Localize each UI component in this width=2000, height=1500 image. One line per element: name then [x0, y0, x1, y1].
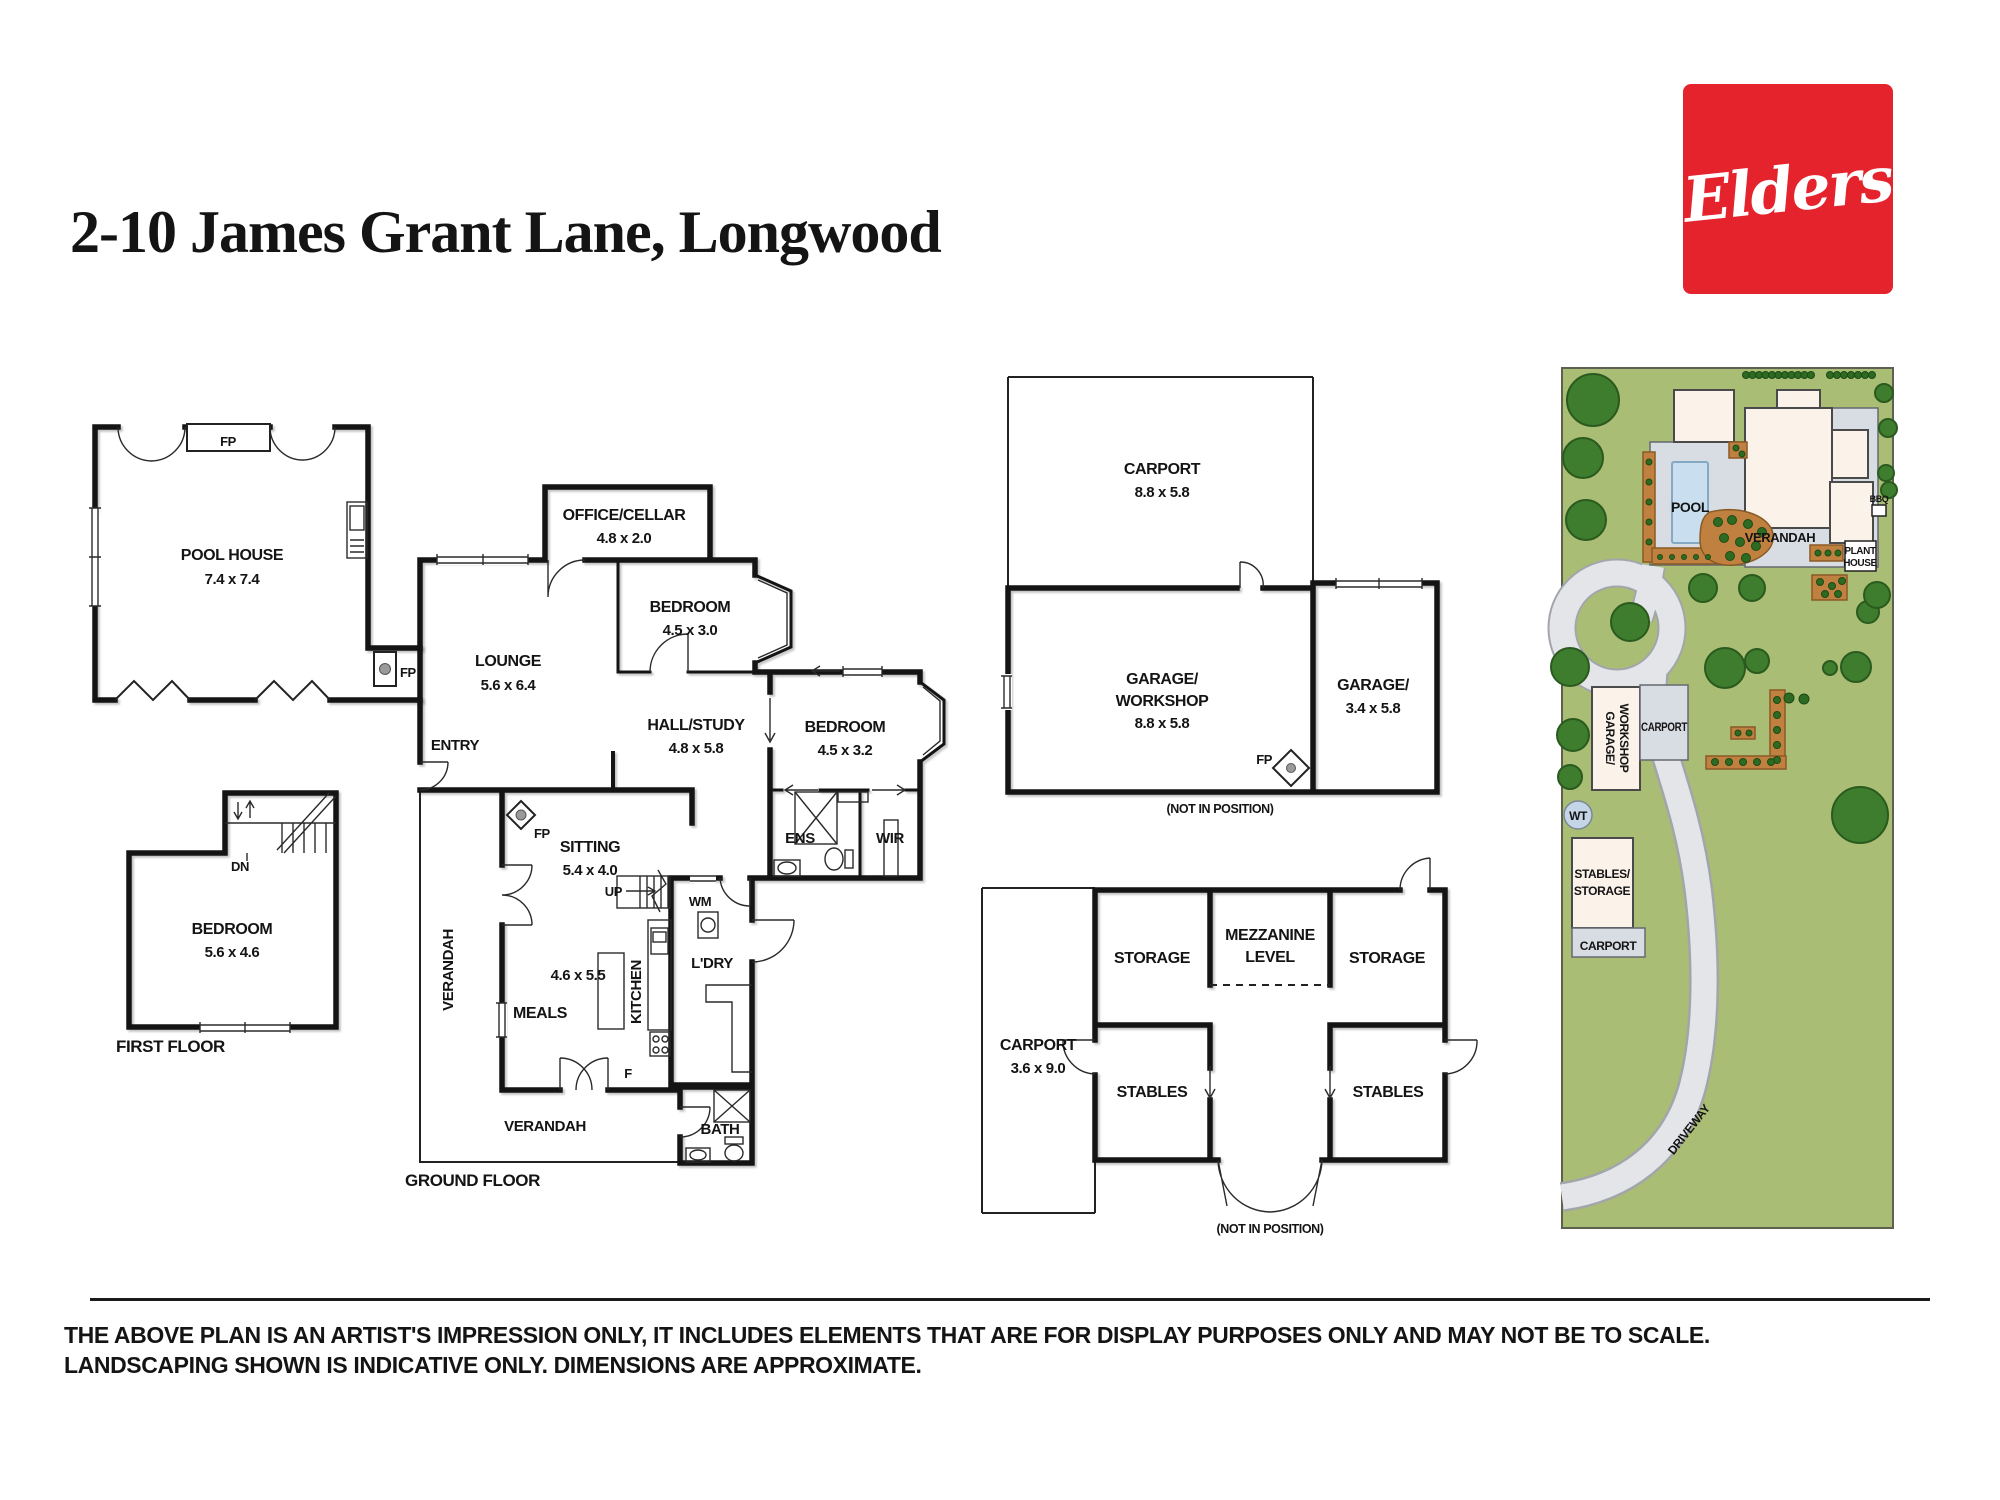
- room-label-storage-left: STORAGE: [1114, 950, 1191, 967]
- label-ensuite: ENS: [785, 830, 815, 847]
- disclaimer-line2: LANDSCAPING SHOWN IS INDICATIVE ONLY. DI…: [64, 1350, 1710, 1380]
- garage2-window-top: [1336, 578, 1422, 589]
- sitting-verandah-doors: [502, 865, 532, 925]
- hall-arrow: [765, 698, 775, 742]
- room-label-bath: BATH: [701, 1121, 740, 1138]
- staircase-down: [225, 793, 336, 861]
- note-garage-not-in-position: (NOT IN POSITION): [1166, 802, 1273, 816]
- site-label-wt: WT: [1569, 809, 1588, 823]
- room-dims-hall-study: 4.8 x 5.8: [669, 740, 724, 757]
- room-label-kitchen: KITCHEN: [628, 960, 645, 1024]
- site-plan: POOL VERANDAH PLANT HOUSE BBQ GARAGE/ WO…: [1551, 368, 1897, 1228]
- room-label-mezzanine-1: MEZZANINE: [1225, 927, 1315, 944]
- room-label-bedroom2: BEDROOM: [805, 719, 886, 736]
- stairs-dn-label: DN: [231, 859, 249, 874]
- room-label-carport2: CARPORT: [1000, 1037, 1077, 1054]
- site-label-stables-storage-1: STABLES/: [1574, 867, 1630, 881]
- staircase-up: [617, 870, 670, 912]
- lounge-window: [437, 554, 528, 565]
- room-label-ff-bedroom: BEDROOM: [192, 921, 273, 938]
- room-label-laundry: L'DRY: [691, 955, 733, 972]
- fireplace-side-label: FP: [400, 665, 417, 680]
- meals-french-doors: [560, 1058, 608, 1090]
- room-dims-carport1: 8.8 x 5.8: [1135, 484, 1190, 501]
- room-label-stables-right: STABLES: [1353, 1084, 1424, 1101]
- stables-block: CARPORT 3.6 x 9.0 STORAGE STORAGE MEZZAN…: [982, 858, 1477, 1236]
- garage-block: FP CARPORT 8.8 x 5.8 GARAGE/ WORKSHOP 8.…: [1001, 377, 1437, 816]
- room-label-stables-left: STABLES: [1117, 1084, 1188, 1101]
- pool-house-window: [89, 508, 101, 606]
- laundry-door: [720, 878, 750, 906]
- first-floor-walls: [129, 793, 336, 1027]
- room-label-sitting: SITTING: [560, 839, 620, 856]
- room-label-garage2: GARAGE/: [1337, 677, 1410, 694]
- site-bbq-box: [1872, 505, 1886, 516]
- bedroom2-window: [812, 666, 882, 677]
- room-dims-sitting: 5.4 x 4.0: [563, 862, 618, 879]
- room-dims-meals: 4.6 x 5.5: [551, 967, 606, 984]
- label-verandah-side: VERANDAH: [440, 929, 457, 1011]
- note-stables-not-in-position: (NOT IN POSITION): [1216, 1222, 1323, 1236]
- room-label-mezzanine-2: LEVEL: [1245, 949, 1295, 966]
- ground-floor: ENTRY LOUNGE 5.6 x 6.4 OFFICE/CELLAR 4.8…: [405, 487, 944, 1190]
- stables-top-door: [1400, 858, 1430, 890]
- footer-divider: [90, 1298, 1930, 1301]
- room-dims-bedroom1: 4.5 x 3.0: [663, 622, 718, 639]
- room-label-hall-study: HALL/STUDY: [647, 717, 745, 734]
- site-label-plant-house-2: HOUSE: [1843, 558, 1877, 569]
- pool-house-bifold-doors: [115, 681, 330, 700]
- room-label-office: OFFICE/CELLAR: [563, 507, 687, 524]
- label-verandah-bottom: VERANDAH: [504, 1118, 586, 1135]
- pool-house: FP FP POOL HOUSE 7.4 x 7.4: [89, 424, 420, 700]
- disclaimer-line1: THE ABOVE PLAN IS AN ARTIST'S IMPRESSION…: [64, 1320, 1710, 1350]
- disclaimer: THE ABOVE PLAN IS AN ARTIST'S IMPRESSION…: [64, 1320, 1710, 1380]
- stables-double-doors: [1218, 1160, 1322, 1212]
- room-label-meals: MEALS: [513, 1005, 568, 1022]
- site-label-garage-workshop-1: GARAGE/: [1603, 711, 1617, 765]
- sitting-fireplace: [507, 801, 535, 829]
- site-label-carport-lower: CARPORT: [1580, 939, 1638, 953]
- carport-outline: [1008, 377, 1313, 588]
- room-label-bedroom1: BEDROOM: [650, 599, 731, 616]
- office-door: [548, 560, 585, 597]
- label-wm: WM: [689, 894, 711, 909]
- room-label-garage-workshop-1: GARAGE/: [1126, 671, 1199, 688]
- garage-window-left: [1001, 674, 1012, 710]
- label-up: UP: [605, 884, 623, 899]
- sink-fixture: [347, 502, 367, 558]
- room-label-carport1: CARPORT: [1124, 461, 1201, 478]
- laundry-fixtures: [698, 912, 752, 1072]
- stables-arrows: [1205, 1066, 1335, 1098]
- fireplace-side-dot: [380, 664, 391, 675]
- floor-plan-canvas: FP FP POOL HOUSE 7.4 x 7.4: [0, 0, 2000, 1500]
- garage-fireplace: [1273, 750, 1309, 786]
- site-label-verandah: VERANDAH: [1745, 530, 1815, 545]
- meals-window: [496, 1003, 507, 1037]
- garage-door: [1240, 562, 1263, 588]
- room-label-garage-workshop-2: WORKSHOP: [1116, 693, 1210, 710]
- laundry-window: [690, 873, 716, 883]
- room-dims-pool-house: 7.4 x 7.4: [205, 571, 261, 588]
- first-floor-title: FIRST FLOOR: [116, 1037, 225, 1056]
- ground-floor-title: GROUND FLOOR: [405, 1171, 540, 1190]
- first-floor-window: [200, 1022, 290, 1033]
- laundry-back-door: [752, 920, 794, 962]
- label-sitting-fp: FP: [534, 826, 551, 841]
- fireplace-top-label: FP: [220, 434, 237, 449]
- first-floor: DN BEDROOM 5.6 x 4.6 FIRST FLOOR: [116, 793, 336, 1056]
- room-dims-carport2: 3.6 x 9.0: [1011, 1060, 1066, 1077]
- site-label-pool: POOL: [1671, 499, 1710, 515]
- site-label-carport-upper: CARPORT: [1641, 720, 1688, 734]
- entry-door: [420, 762, 448, 790]
- room-label-pool-house: POOL HOUSE: [181, 547, 284, 564]
- site-label-stables-storage-2: STORAGE: [1574, 884, 1631, 898]
- room-dims-garage2: 3.4 x 5.8: [1346, 700, 1401, 717]
- site-label-bbq: BBQ: [1870, 494, 1889, 504]
- room-dims-ff-bedroom: 5.6 x 4.6: [205, 944, 260, 961]
- room-dims-office: 4.8 x 2.0: [597, 530, 652, 547]
- floorplan-page: 2-10 James Grant Lane, Longwood Elders F…: [0, 0, 2000, 1500]
- label-entry: ENTRY: [431, 737, 480, 754]
- room-dims-lounge: 5.6 x 6.4: [481, 677, 537, 694]
- bedroom1-door: [650, 634, 688, 672]
- room-label-lounge: LOUNGE: [475, 653, 542, 670]
- room-dims-garage-workshop: 8.8 x 5.8: [1135, 715, 1190, 732]
- stables-right-door: [1445, 1040, 1477, 1074]
- room-label-storage-right: STORAGE: [1349, 950, 1426, 967]
- label-wir: WIR: [876, 830, 905, 847]
- site-label-garage-workshop-2: WORKSHOP: [1617, 704, 1631, 773]
- label-fridge: F: [624, 1066, 632, 1081]
- site-label-plant-house-1: PLANT: [1844, 546, 1876, 557]
- site-hedge-row: [1743, 372, 1876, 379]
- room-dims-bedroom2: 4.5 x 3.2: [818, 742, 873, 759]
- ground-floor-walls: [420, 487, 944, 1163]
- label-garage-fp: FP: [1256, 752, 1273, 767]
